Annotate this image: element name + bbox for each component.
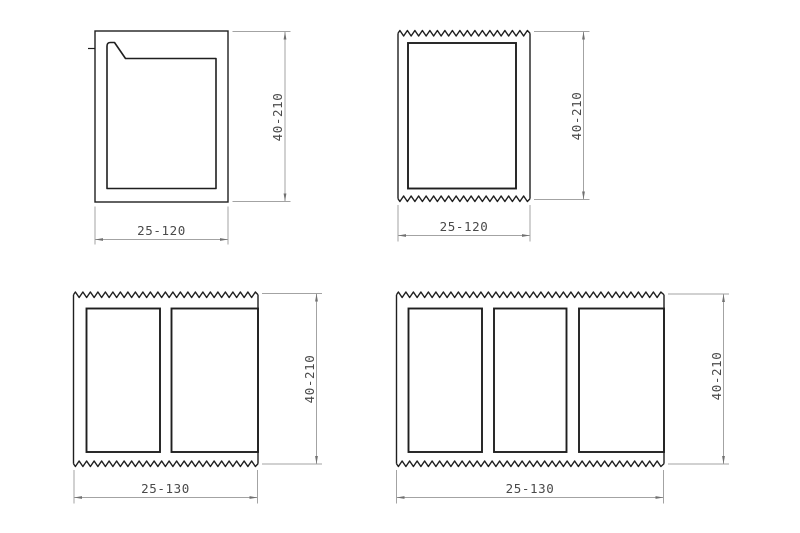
arrow-up-icon	[722, 294, 725, 302]
arrow-down-icon	[582, 192, 585, 200]
height-dim-label: 40-210	[302, 355, 317, 404]
figure-profile-top-left: 40-210 25-120	[88, 31, 291, 245]
arrow-left-icon	[398, 234, 406, 237]
height-dim-label: 40-210	[709, 352, 724, 401]
arrow-left-icon	[95, 238, 103, 241]
cavity-rect-3	[579, 309, 664, 453]
dimension-arrows	[398, 32, 585, 237]
cavity-rect-2	[172, 309, 259, 453]
arrow-up-icon	[582, 32, 585, 40]
serration-bottom	[398, 196, 530, 202]
drawing-canvas: 40-210 25-120 40-210 25-120	[0, 0, 800, 533]
dimension-lines	[95, 32, 291, 245]
cavity-rect-2	[494, 309, 567, 453]
dimension-labels: 40-210 25-120	[137, 93, 285, 238]
arrow-down-icon	[315, 456, 318, 464]
serration-top	[74, 292, 259, 298]
dimension-lines	[74, 294, 322, 504]
object-lines	[398, 31, 530, 202]
dimension-lines	[397, 294, 730, 504]
width-dim-label: 25-130	[506, 481, 555, 496]
width-dim-label: 25-120	[440, 219, 489, 234]
cavity-rect-1	[409, 309, 483, 453]
arrow-down-icon	[284, 194, 287, 202]
object-lines	[88, 31, 228, 202]
arrow-right-icon	[656, 496, 664, 499]
width-dim-label: 25-120	[137, 223, 186, 238]
serration-top	[398, 31, 530, 37]
serration-top	[397, 292, 665, 298]
arrow-right-icon	[220, 238, 228, 241]
dimension-lines	[398, 32, 590, 242]
dimension-labels: 40-210 25-120	[440, 92, 584, 234]
figure-profile-bottom-left: 40-210 25-130	[74, 292, 323, 504]
width-dim-label: 25-130	[141, 481, 190, 496]
arrow-left-icon	[74, 496, 82, 499]
object-lines	[74, 292, 259, 467]
arrow-right-icon	[522, 234, 530, 237]
arrow-left-icon	[397, 496, 405, 499]
dimension-labels: 40-210 25-130	[506, 352, 724, 496]
height-dim-label: 40-210	[569, 92, 584, 141]
arrow-down-icon	[722, 456, 725, 464]
profile-cavity	[107, 43, 216, 189]
cavity-rect-1	[87, 309, 161, 453]
cavity-rect	[408, 43, 516, 189]
figure-profile-top-right: 40-210 25-120	[398, 31, 590, 242]
dimension-labels: 40-210 25-130	[141, 355, 317, 496]
object-lines	[397, 292, 665, 467]
technical-drawing-page: 40-210 25-120 40-210 25-120	[0, 0, 800, 533]
arrow-right-icon	[250, 496, 258, 499]
figure-profile-bottom-right: 40-210 25-130	[397, 292, 730, 504]
serration-bottom	[74, 461, 259, 467]
profile-outline	[95, 31, 228, 202]
height-dim-label: 40-210	[270, 93, 285, 142]
serration-bottom	[397, 461, 665, 467]
dimension-arrows	[95, 32, 286, 241]
arrow-up-icon	[315, 294, 318, 302]
dimension-arrows	[74, 294, 318, 499]
arrow-up-icon	[284, 32, 287, 40]
dimension-arrows	[397, 294, 725, 499]
